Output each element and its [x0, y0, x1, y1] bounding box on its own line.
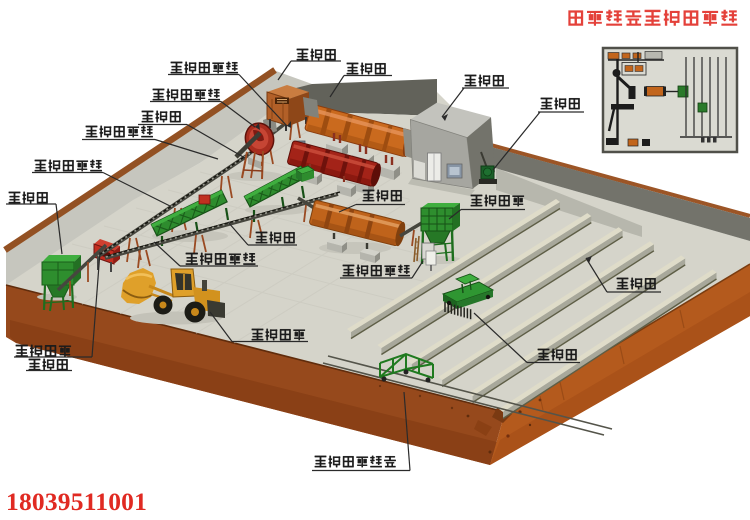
- svg-text:18039511001: 18039511001: [6, 487, 147, 516]
